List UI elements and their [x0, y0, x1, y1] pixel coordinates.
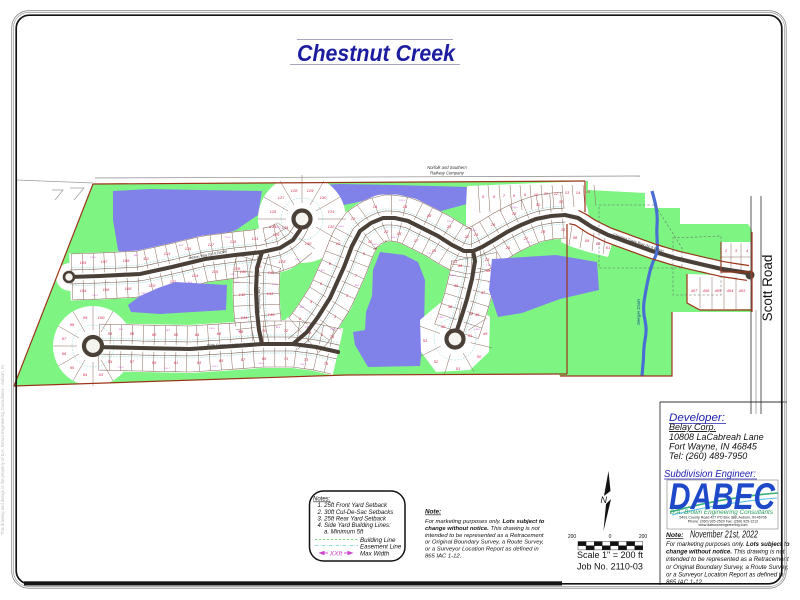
svg-text:2. 30ft Cul-De-Sac Setbacks: 2. 30ft Cul-De-Sac Setbacks — [317, 510, 394, 516]
svg-text:116: 116 — [212, 269, 219, 274]
svg-text:4. Side Yard Building Lines:: 4. Side Yard Building Lines: — [318, 523, 391, 529]
svg-text:105.7: 105.7 — [450, 275, 456, 277]
svg-text:865 IAC 1-12.: 865 IAC 1-12. — [425, 554, 461, 560]
svg-text:0: 0 — [609, 534, 612, 540]
svg-text:25: 25 — [505, 245, 511, 250]
svg-text:110: 110 — [149, 283, 156, 288]
svg-text:130: 130 — [320, 195, 327, 200]
svg-text:30: 30 — [536, 202, 541, 207]
svg-text:141: 141 — [268, 270, 275, 275]
svg-text:55: 55 — [108, 359, 113, 364]
svg-text:60: 60 — [152, 332, 157, 337]
svg-text:132: 132 — [328, 224, 335, 229]
svg-text:129: 129 — [273, 232, 280, 237]
svg-text:Chestnut Creek: Chestnut Creek — [297, 40, 457, 66]
svg-text:Max Width: Max Width — [360, 550, 390, 557]
svg-text:intended to be represented as: intended to be represented as a Retracem… — [666, 556, 789, 563]
svg-text:99: 99 — [83, 315, 88, 320]
svg-text:50: 50 — [477, 354, 482, 359]
svg-text:105.7: 105.7 — [164, 368, 170, 370]
svg-text:49: 49 — [483, 331, 488, 336]
svg-text:Scott Road: Scott Road — [760, 255, 775, 322]
svg-text:51: 51 — [456, 366, 460, 371]
svg-text:404: 404 — [727, 288, 734, 293]
svg-text:132.0: 132.0 — [474, 329, 480, 331]
svg-text:93: 93 — [99, 372, 104, 377]
svg-text:120.5: 120.5 — [338, 226, 344, 228]
svg-text:20: 20 — [446, 224, 452, 229]
svg-text:105.7: 105.7 — [391, 237, 397, 239]
svg-text:120.5: 120.5 — [92, 295, 98, 297]
svg-text:120.5: 120.5 — [272, 284, 278, 286]
svg-text:129: 129 — [307, 188, 314, 193]
svg-text:140: 140 — [240, 269, 247, 274]
svg-text:105.7: 105.7 — [212, 366, 218, 368]
svg-text:108: 108 — [125, 286, 132, 291]
svg-text:24: 24 — [473, 232, 479, 237]
svg-text:a. Minimum 5ft: a. Minimum 5ft — [324, 530, 364, 536]
svg-text:94: 94 — [83, 372, 88, 377]
svg-text:58: 58 — [573, 235, 578, 240]
svg-text:62: 62 — [174, 332, 179, 337]
svg-text:17: 17 — [414, 238, 419, 243]
svg-text:132.0: 132.0 — [438, 317, 444, 319]
svg-text:For marketing purposes only.: For marketing purposes only. Lots subjec… — [425, 519, 545, 525]
svg-text:105.7: 105.7 — [300, 364, 306, 366]
svg-text:56: 56 — [108, 331, 113, 336]
svg-text:For marketing purposes only.: For marketing purposes only. Lots subjec… — [666, 541, 790, 548]
svg-text:52: 52 — [434, 359, 439, 364]
svg-text:31: 31 — [561, 227, 565, 232]
svg-text:11: 11 — [544, 191, 548, 196]
svg-text:120.5: 120.5 — [512, 207, 518, 209]
svg-text:65: 65 — [219, 358, 224, 363]
svg-text:N: N — [601, 495, 608, 505]
svg-text:28: 28 — [511, 211, 517, 216]
svg-text:67: 67 — [241, 357, 246, 362]
svg-text:109: 109 — [123, 258, 130, 263]
svg-text:200: 200 — [568, 534, 577, 540]
svg-text:or Original Boundary Survey, a: or Original Boundary Survey, a Route Sur… — [425, 540, 544, 546]
svg-text:105.7: 105.7 — [295, 259, 301, 261]
svg-text:406: 406 — [703, 288, 710, 293]
svg-text:132.0: 132.0 — [330, 329, 336, 331]
svg-text:58: 58 — [130, 331, 135, 336]
svg-text:Oak Hollow Run: Oak Hollow Run — [257, 287, 261, 313]
svg-text:or a Surveyor Location Report: or a Surveyor Location Report as defined… — [425, 547, 539, 553]
svg-text:14: 14 — [373, 204, 378, 209]
svg-text:10808 LaCabreah Lane: 10808 LaCabreah Lane — [669, 432, 764, 442]
svg-text:61: 61 — [606, 245, 610, 250]
svg-text:105: 105 — [80, 260, 87, 265]
svg-text:Notes:: Notes: — [313, 497, 331, 503]
svg-text:57: 57 — [130, 359, 135, 364]
svg-text:132.0: 132.0 — [427, 253, 433, 255]
svg-text:50: 50 — [441, 324, 446, 329]
svg-text:59: 59 — [585, 238, 590, 243]
svg-text:63: 63 — [197, 360, 202, 365]
svg-text:1. 25ft Front Yard Setback: 1. 25ft Front Yard Setback — [318, 503, 388, 509]
svg-text:64: 64 — [195, 332, 200, 337]
svg-text:51: 51 — [468, 333, 472, 338]
svg-text:59: 59 — [152, 360, 157, 365]
svg-text:120.5: 120.5 — [90, 257, 96, 259]
svg-text:95: 95 — [70, 365, 75, 370]
svg-text:15: 15 — [586, 189, 591, 194]
svg-text:143: 143 — [267, 291, 274, 296]
svg-text:47: 47 — [481, 290, 486, 295]
svg-text:13: 13 — [565, 190, 570, 195]
svg-text:114: 114 — [192, 273, 199, 278]
svg-text:18: 18 — [427, 213, 432, 218]
svg-text:10: 10 — [534, 192, 539, 197]
svg-text:29: 29 — [540, 229, 546, 234]
svg-text:Easement Line: Easement Line — [360, 543, 402, 550]
svg-text:66: 66 — [217, 331, 222, 336]
svg-text:111: 111 — [143, 256, 149, 261]
svg-text:22: 22 — [464, 234, 470, 239]
svg-text:113: 113 — [164, 251, 171, 256]
svg-text:53: 53 — [423, 338, 428, 343]
svg-text:Note:: Note: — [666, 532, 683, 539]
svg-text:120.5: 120.5 — [372, 244, 378, 246]
svg-text:120.5: 120.5 — [234, 282, 240, 284]
svg-text:106: 106 — [103, 287, 110, 292]
svg-text:27: 27 — [523, 236, 529, 241]
svg-text:Note:: Note: — [425, 509, 441, 516]
svg-text:3. 25ft Rear Yard Setback: 3. 25ft Rear Yard Setback — [318, 517, 387, 523]
svg-text:128: 128 — [279, 259, 286, 264]
svg-text:23: 23 — [484, 257, 490, 262]
svg-text:73: 73 — [304, 357, 309, 362]
svg-text:132.0: 132.0 — [209, 328, 215, 330]
svg-text:Wide Crossword (50 ft ROW): Wide Crossword (50 ft ROW) — [207, 343, 254, 348]
svg-text:132.0: 132.0 — [319, 270, 325, 272]
svg-text:120.5: 120.5 — [399, 200, 405, 202]
svg-text:49: 49 — [475, 312, 480, 317]
svg-text:142: 142 — [239, 292, 246, 297]
svg-text:115: 115 — [185, 246, 192, 251]
svg-text:change without notice. This d: change without notice. This drawing is n… — [666, 549, 785, 556]
svg-text:46: 46 — [454, 283, 459, 288]
svg-text:200: 200 — [639, 534, 648, 540]
svg-text:96: 96 — [62, 351, 67, 356]
svg-text:125: 125 — [270, 224, 277, 229]
svg-text:Belay Corp.: Belay Corp. — [669, 422, 716, 432]
svg-text:132.0: 132.0 — [447, 221, 453, 223]
svg-text:or a Surveyor Location Report: or a Surveyor Location Report as defined… — [666, 571, 784, 578]
svg-text:131: 131 — [328, 209, 335, 214]
svg-text:13: 13 — [384, 229, 389, 234]
svg-text:126: 126 — [270, 209, 277, 214]
svg-text:69: 69 — [262, 356, 267, 361]
svg-text:45: 45 — [486, 268, 491, 273]
svg-text:November 21st, 2022: November 21st, 2022 — [690, 529, 758, 541]
svg-text:14: 14 — [576, 190, 581, 195]
svg-text:intended to be represented as: intended to be represented as a Retracem… — [425, 533, 544, 539]
svg-text:10: 10 — [336, 241, 341, 246]
svg-text:21: 21 — [452, 259, 457, 264]
svg-text:403: 403 — [739, 288, 746, 293]
svg-text:1: 1 — [321, 332, 323, 337]
svg-text:865 IAC 1-12.: 865 IAC 1-12. — [666, 579, 704, 586]
svg-text:97: 97 — [62, 336, 67, 341]
svg-text:104: 104 — [80, 288, 87, 293]
svg-text:120.5: 120.5 — [118, 367, 124, 369]
svg-text:128: 128 — [291, 188, 298, 193]
svg-text:75: 75 — [324, 361, 329, 366]
svg-text:120.5: 120.5 — [258, 363, 264, 365]
svg-text:60: 60 — [596, 241, 601, 246]
svg-text:100: 100 — [98, 315, 105, 320]
svg-text:or Original Boundary Survey, a: or Original Boundary Survey, a Route Sur… — [666, 564, 789, 571]
svg-text:407: 407 — [691, 288, 698, 293]
svg-text:15: 15 — [397, 231, 402, 236]
svg-text:61: 61 — [174, 360, 178, 365]
svg-text:Scale 1" = 200 ft: Scale 1" = 200 ft — [577, 550, 643, 560]
svg-text:71: 71 — [284, 356, 288, 361]
svg-text:Railway Company: Railway Company — [430, 171, 465, 176]
svg-text:72: 72 — [284, 328, 289, 333]
svg-text:12: 12 — [351, 216, 356, 221]
svg-text:145: 145 — [268, 312, 275, 317]
svg-text:Job No. 2110-03: Job No. 2110-03 — [577, 562, 643, 572]
svg-text:12: 12 — [554, 191, 559, 196]
svg-text:127: 127 — [278, 195, 285, 200]
svg-text:change without notice. This: change without notice. This drawing is n… — [425, 526, 540, 532]
svg-text:44: 44 — [458, 263, 463, 268]
svg-text:16: 16 — [403, 204, 408, 209]
svg-text:107: 107 — [101, 259, 108, 264]
svg-text:144: 144 — [241, 315, 248, 320]
svg-text:98: 98 — [70, 322, 75, 327]
svg-text:This drawing and design is the: This drawing and design is the property … — [0, 365, 5, 535]
svg-text:121: 121 — [252, 236, 259, 241]
svg-text:26: 26 — [490, 222, 496, 227]
svg-text:Tel: (260) 489-7950: Tel: (260) 489-7950 — [669, 451, 747, 461]
svg-text:Norfolk and Southern: Norfolk and Southern — [427, 165, 467, 170]
svg-text:Fort Wayne, IN 46845: Fort Wayne, IN 46845 — [669, 442, 758, 452]
svg-text:130: 130 — [305, 241, 312, 246]
svg-text:www.dabrownengineering.com: www.dabrownengineering.com — [699, 523, 748, 527]
svg-text:119: 119 — [230, 239, 237, 244]
svg-text:105.7: 105.7 — [526, 242, 532, 244]
svg-text:117: 117 — [208, 242, 215, 247]
svg-text:Seeger Drain: Seeger Drain — [636, 299, 641, 325]
svg-text:68: 68 — [239, 329, 244, 334]
svg-text:XXft: XXft — [329, 551, 344, 558]
svg-text:120.5: 120.5 — [225, 237, 231, 239]
svg-text:48: 48 — [448, 304, 453, 309]
svg-text:120.5: 120.5 — [471, 230, 477, 232]
